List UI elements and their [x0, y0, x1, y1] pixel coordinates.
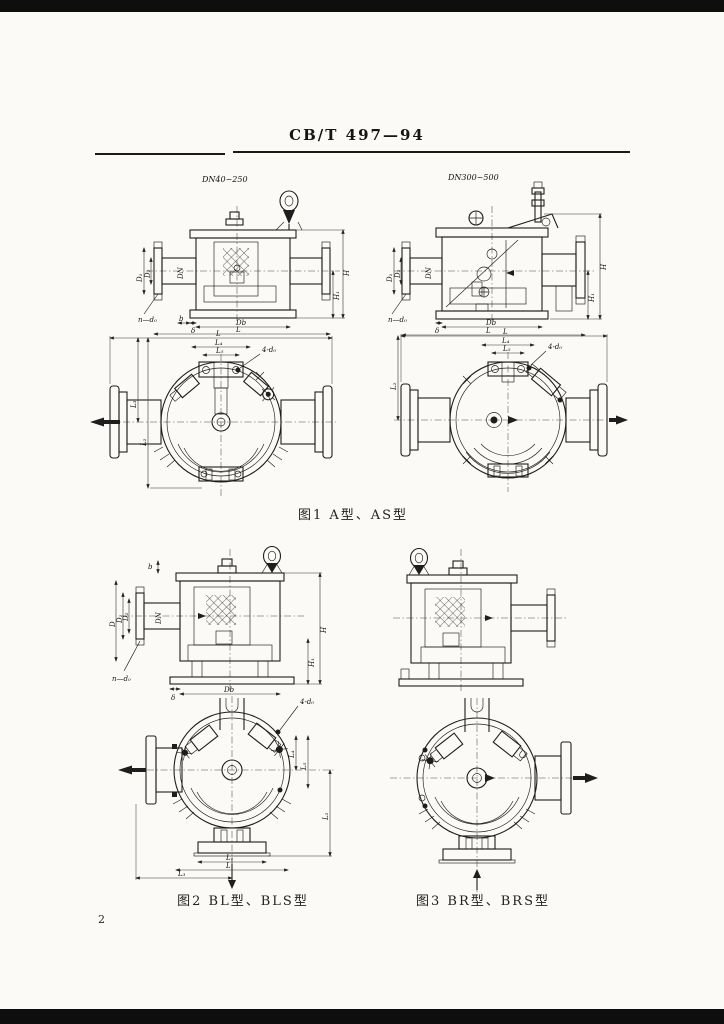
eyebolt-icon	[266, 563, 278, 573]
dim-label-L3: L₃	[130, 400, 138, 409]
dim-label-L: L	[502, 328, 508, 336]
centerlines	[96, 354, 336, 496]
dim-label-D1: D₁	[386, 273, 394, 283]
dim-label-L: L	[215, 330, 221, 338]
strainer-body-plan	[172, 698, 291, 828]
dim-label-DN: DN	[177, 266, 185, 280]
dim-label-D2: D₂	[394, 269, 402, 279]
flow-arrow-right	[573, 773, 598, 783]
dim-label-L1: L₁	[225, 854, 234, 862]
base-foot-plan	[439, 836, 515, 863]
scan-border-top	[0, 0, 724, 12]
figure1-caption: 图1 A型、AS型	[268, 504, 438, 523]
dim-label-DN: DN	[425, 266, 433, 280]
dim-label-nd0: n—d₀	[138, 316, 157, 324]
dim-label-H1: H₁	[588, 293, 596, 303]
right-flange	[542, 236, 585, 311]
dim-label-L5: L₅	[215, 347, 224, 355]
cover-clamp-right	[242, 370, 281, 407]
dim-label-L4: L₄	[501, 337, 510, 345]
dim-label-D2: D₂	[144, 269, 152, 279]
dim-label-D1: D₁	[136, 273, 144, 283]
dimension-lines	[392, 214, 602, 335]
dim-label-L4: L₄	[214, 339, 223, 347]
eyebolt-icon	[283, 210, 295, 224]
dim-label-L5: L₅	[502, 345, 511, 353]
page-number: 2	[98, 913, 105, 926]
filter-screen	[206, 595, 236, 625]
cover-clamp-left	[169, 374, 200, 402]
dim-label-4d0: 4-d₀	[547, 343, 562, 351]
lid-assembly	[436, 182, 558, 237]
fig1-plan-view-left: L L₄ L₅ 4-d₀ L₃ L₂	[90, 328, 340, 500]
filter-screen	[435, 597, 465, 627]
standard-code-header: CB/T 497—94	[247, 126, 467, 144]
flow-marker	[485, 615, 493, 621]
body	[170, 581, 294, 684]
dim-label-b: b	[148, 563, 153, 571]
fig1-side-view-dn300-500: DN300~500	[388, 170, 616, 338]
dim-label-L: L	[225, 862, 231, 870]
dimension-labels: L L₄ L₅ 4-d₀ L₃ L₂	[130, 330, 276, 447]
dimension-labels: b D D₁ D₂ DN H H₁ n—d₀ δ Db	[109, 563, 328, 702]
header-rule-right	[233, 151, 630, 153]
fig2-bl-side-view: b D D₁ D₂ DN H H₁ n—d₀ δ Db	[112, 543, 334, 701]
dim-label-H1: H₁	[308, 658, 316, 668]
up-arrow	[473, 869, 481, 890]
header-rule-left	[95, 153, 225, 155]
figure2-caption: 图2 BL型、BLS型	[158, 890, 328, 909]
dim-label-H: H	[343, 269, 351, 277]
fig1-side-view-dn40-250: DN40~250	[138, 172, 363, 337]
scan-border-bottom	[0, 1009, 724, 1024]
dim-label-L4: L₄	[288, 750, 296, 759]
dim-label-L2: L₂	[140, 438, 148, 447]
flow-arrow-left	[118, 766, 146, 775]
flow-arrow-right	[609, 416, 628, 425]
fig3-br-side-view	[385, 545, 580, 700]
fig2-bl-plan-view: 4-d₀ L₄ L₅ L₂ L₁ L L₃	[118, 692, 338, 890]
eyebolt-icon	[413, 565, 425, 575]
flow-marker	[485, 774, 495, 782]
flow-marker	[508, 416, 518, 424]
dim-label-L2: L₂	[390, 382, 398, 391]
centerlines	[394, 206, 596, 324]
dn-range-label: DN300~500	[447, 173, 499, 182]
strainer-body-plan	[417, 698, 537, 838]
dim-label-nd0: n—d₀	[388, 316, 407, 324]
dim-label-4d0: 4-d₀	[299, 698, 314, 706]
dn-range-label: DN40~250	[201, 175, 248, 184]
dim-label-H: H	[600, 263, 608, 271]
flow-arrow-left	[90, 418, 120, 427]
dim-label-DN: DN	[155, 611, 163, 625]
dim-label-H1: H₁	[333, 291, 341, 301]
dimension-lines	[136, 706, 332, 880]
lid-assembly	[190, 191, 302, 238]
fig1-plan-view-right: L L₄ L₅ 4-d₀ L₂	[390, 328, 628, 498]
dim-label-L5: L₅	[300, 762, 308, 771]
dimension-labels: 4-d₀ L₄ L₅ L₂ L₁ L L₃	[177, 698, 330, 878]
body	[190, 238, 296, 318]
dim-label-nd0: n—d₀	[112, 675, 131, 683]
dim-label-4d0: 4-d₀	[261, 346, 276, 354]
dim-label-b: b	[179, 315, 184, 323]
dimension-labels: D₁ D₂ DN H H₁ b δ Db L n—d₀	[136, 266, 351, 335]
document-page: CB/T 497—94 DN40~250	[0, 0, 724, 1024]
figure3-caption: 图3 BR型、BRS型	[398, 890, 568, 909]
dim-label-D2: D₂	[122, 612, 130, 622]
dimension-labels: D₁ D₂ DN H H₁ δ Db L n—d₀	[386, 263, 608, 335]
dim-label-L2: L₂	[322, 812, 330, 821]
dim-label-H: H	[320, 626, 328, 634]
flow-marker	[198, 613, 206, 619]
dim-label-Db: Db	[485, 319, 497, 327]
dim-label-L3: L₃	[177, 870, 186, 878]
lid-assembly	[407, 549, 517, 584]
fig3-br-plan-view	[388, 694, 598, 899]
